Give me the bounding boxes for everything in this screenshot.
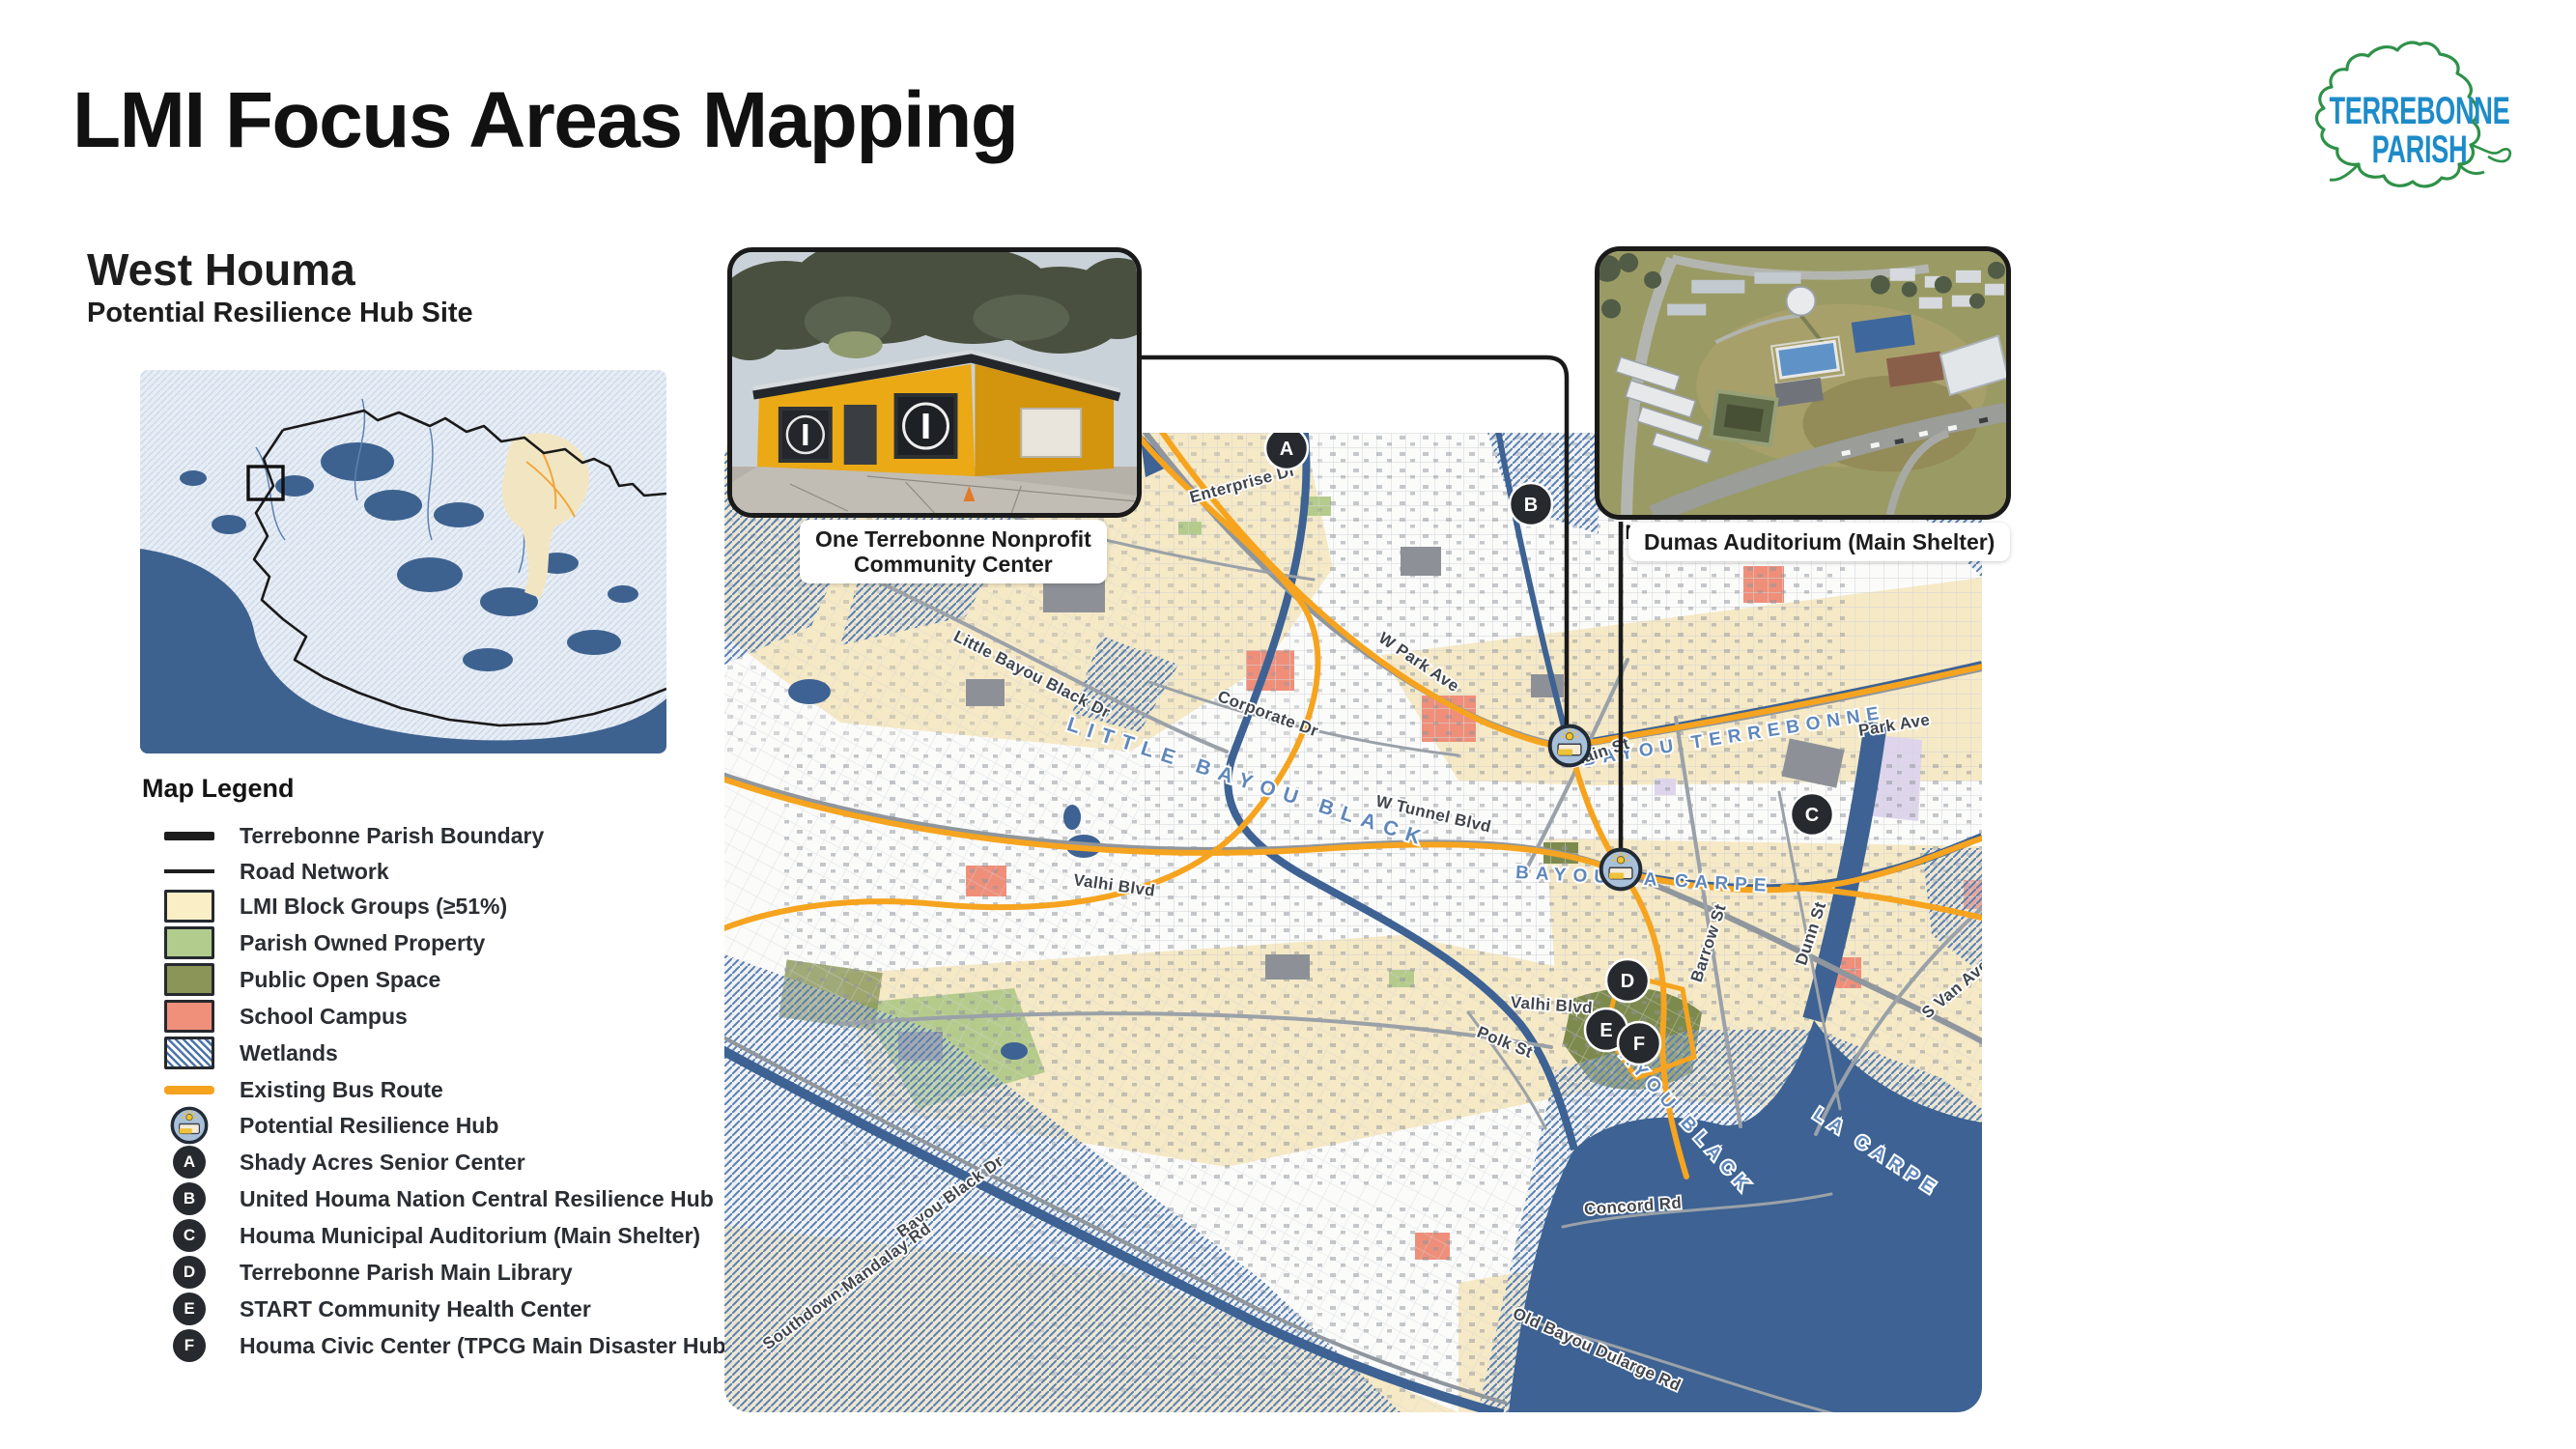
legend-item-school-campus: School Campus [164, 998, 408, 1035]
open-space-swatch [164, 961, 214, 998]
badge-e-icon: E [173, 1293, 206, 1325]
badge-b-icon: B [173, 1182, 206, 1215]
legend-item-parish-property: Parish Owned Property [164, 924, 485, 961]
legend-item-c: C Houma Municipal Auditorium (Main Shelt… [164, 1217, 700, 1254]
terrebonne-parish-logo: TERREBONNE PARISH [2308, 37, 2531, 196]
school-swatch [164, 998, 214, 1035]
resilience-hub-icon [164, 1107, 214, 1144]
photo-community-center[interactable] [727, 247, 1142, 518]
page-title: LMI Focus Areas Mapping [72, 75, 1017, 166]
thick-line-swatch [164, 817, 214, 854]
badge-c-icon: C [173, 1219, 206, 1252]
community-center-photo-art [732, 252, 1137, 513]
marker-a[interactable]: A [1265, 433, 1308, 469]
focus-area-title: West Houma [87, 243, 355, 296]
parish-locator-map[interactable] [140, 370, 666, 753]
svg-text:B: B [1524, 495, 1538, 516]
marker-b[interactable]: B [1510, 483, 1552, 526]
community-center-label: One Terrebonne Nonprofit Community Cente… [800, 520, 1107, 583]
photo-dumas-auditorium[interactable] [1595, 246, 2011, 520]
lmi-swatch [164, 888, 214, 924]
svg-text:D: D [1621, 971, 1634, 992]
legend-item-a: A Shady Acres Senior Center [164, 1144, 525, 1180]
svg-text:F: F [1633, 1034, 1645, 1055]
auditorium-label: Dumas Auditorium (Main Shelter) [1628, 523, 2010, 561]
legend-item-parish-boundary: Terrebonne Parish Boundary [164, 817, 544, 854]
svg-text:C: C [1805, 805, 1819, 826]
svg-text:A: A [1280, 439, 1293, 460]
legend-item-open-space: Public Open Space [164, 961, 440, 998]
badge-a-icon: A [173, 1146, 206, 1179]
focus-area-subtitle: Potential Resilience Hub Site [87, 298, 473, 329]
badge-d-icon: D [173, 1256, 206, 1289]
logo-line1: TERREBONNE [2329, 90, 2509, 132]
legend-item-lmi-block-groups: LMI Block Groups (≥51%) [164, 888, 507, 924]
marker-d[interactable]: D [1606, 959, 1649, 1002]
legend-item-bus-route: Existing Bus Route [164, 1071, 443, 1108]
bus-route-swatch [164, 1071, 214, 1108]
svg-text:E: E [1599, 1020, 1612, 1041]
logo-line2: PARISH [2372, 128, 2468, 171]
legend-item-road-network: Road Network [164, 853, 389, 890]
parish-property-swatch [164, 924, 214, 961]
thin-line-swatch [164, 853, 214, 890]
badge-f-icon: F [173, 1329, 206, 1362]
marker-f[interactable]: F [1618, 1022, 1660, 1065]
legend-item-f: F Houma Civic Center (TPCG Main Disaster… [164, 1327, 733, 1364]
legend-item-resilience-hub: Potential Resilience Hub [164, 1107, 498, 1144]
legend-item-d: D Terrebonne Parish Main Library [164, 1254, 573, 1291]
marker-c[interactable]: C [1791, 793, 1833, 836]
legend-item-wetlands: Wetlands [164, 1035, 338, 1071]
wetlands-swatch [164, 1035, 214, 1071]
legend-heading: Map Legend [142, 774, 295, 804]
auditorium-aerial-art [1599, 251, 2006, 515]
legend-item-e: E START Community Health Center [164, 1291, 591, 1327]
legend-item-b: B United Houma Nation Central Resilience… [164, 1180, 714, 1217]
